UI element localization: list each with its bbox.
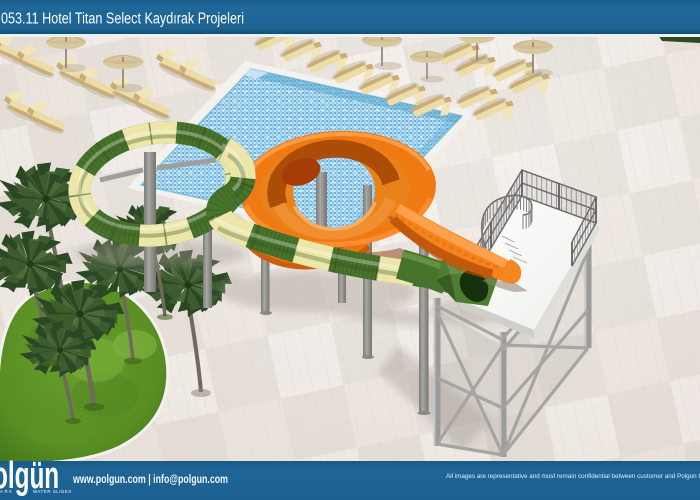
- svg-text:ARK: ARK: [0, 489, 14, 494]
- svg-text:WATER SLIDES: WATER SLIDES: [33, 489, 72, 494]
- svg-text:053.11 Hotel Titan Select Kayd: 053.11 Hotel Titan Select Kaydırak Proje…: [1, 11, 244, 28]
- svg-text:All images are representative: All images are representative and must r…: [446, 473, 700, 480]
- svg-text:www.polgun.com | info@polgun.c: www.polgun.com | info@polgun.com: [72, 474, 228, 486]
